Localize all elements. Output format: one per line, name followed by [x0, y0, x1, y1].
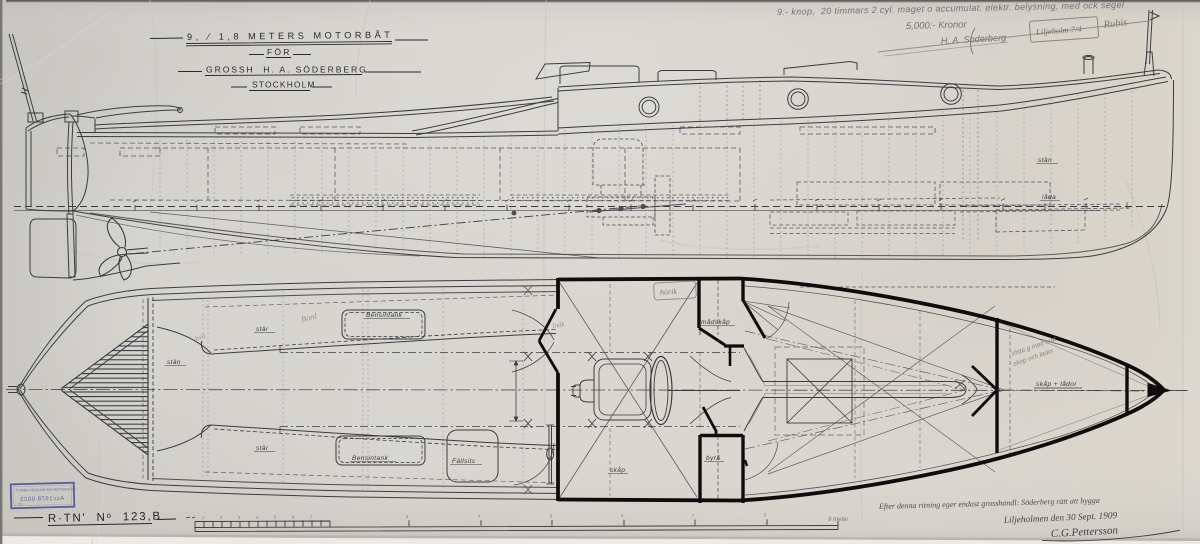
svg-text:skåp: skåp — [610, 466, 625, 474]
svg-text:FÖR: FÖR — [267, 47, 292, 57]
svg-text:Fällsits: Fällsits — [452, 458, 476, 465]
svg-text:stär: stär — [256, 445, 269, 452]
svg-text:låda: låda — [1042, 193, 1056, 201]
svg-text:Bensintank: Bensintank — [366, 312, 403, 319]
svg-text:hörik: hörik — [660, 287, 678, 297]
svg-text:5,000:- Kronor: 5,000:- Kronor — [906, 19, 968, 32]
svg-text:mådskåp: mådskåp — [701, 318, 730, 326]
svg-text:skåp + lådor: skåp + lådor — [1036, 380, 1077, 388]
svg-text:↓ 7º↓: ↓ 7º↓ — [14, 502, 24, 507]
svg-text:byrå: byrå — [706, 454, 720, 462]
svg-text:stär: stär — [256, 326, 269, 333]
svg-text:9 meter: 9 meter — [828, 517, 849, 523]
svg-text:stän: stän — [1038, 157, 1052, 164]
svg-text:Bensintank: Bensintank — [352, 455, 389, 462]
svg-text:stän: stän — [167, 359, 181, 366]
svg-text:R·TNʹ Nᵒ 123,B: R·TNʹ Nᵒ 123,B — [48, 511, 162, 525]
svg-text:STOCKHOLM: STOCKHOLM — [252, 80, 316, 90]
svg-text:Acc1978 0023: Acc1978 0023 — [20, 496, 65, 503]
svg-text:GROSSH H. A. SÖDERBERG: GROSSH H. A. SÖDERBERG — [206, 65, 368, 75]
